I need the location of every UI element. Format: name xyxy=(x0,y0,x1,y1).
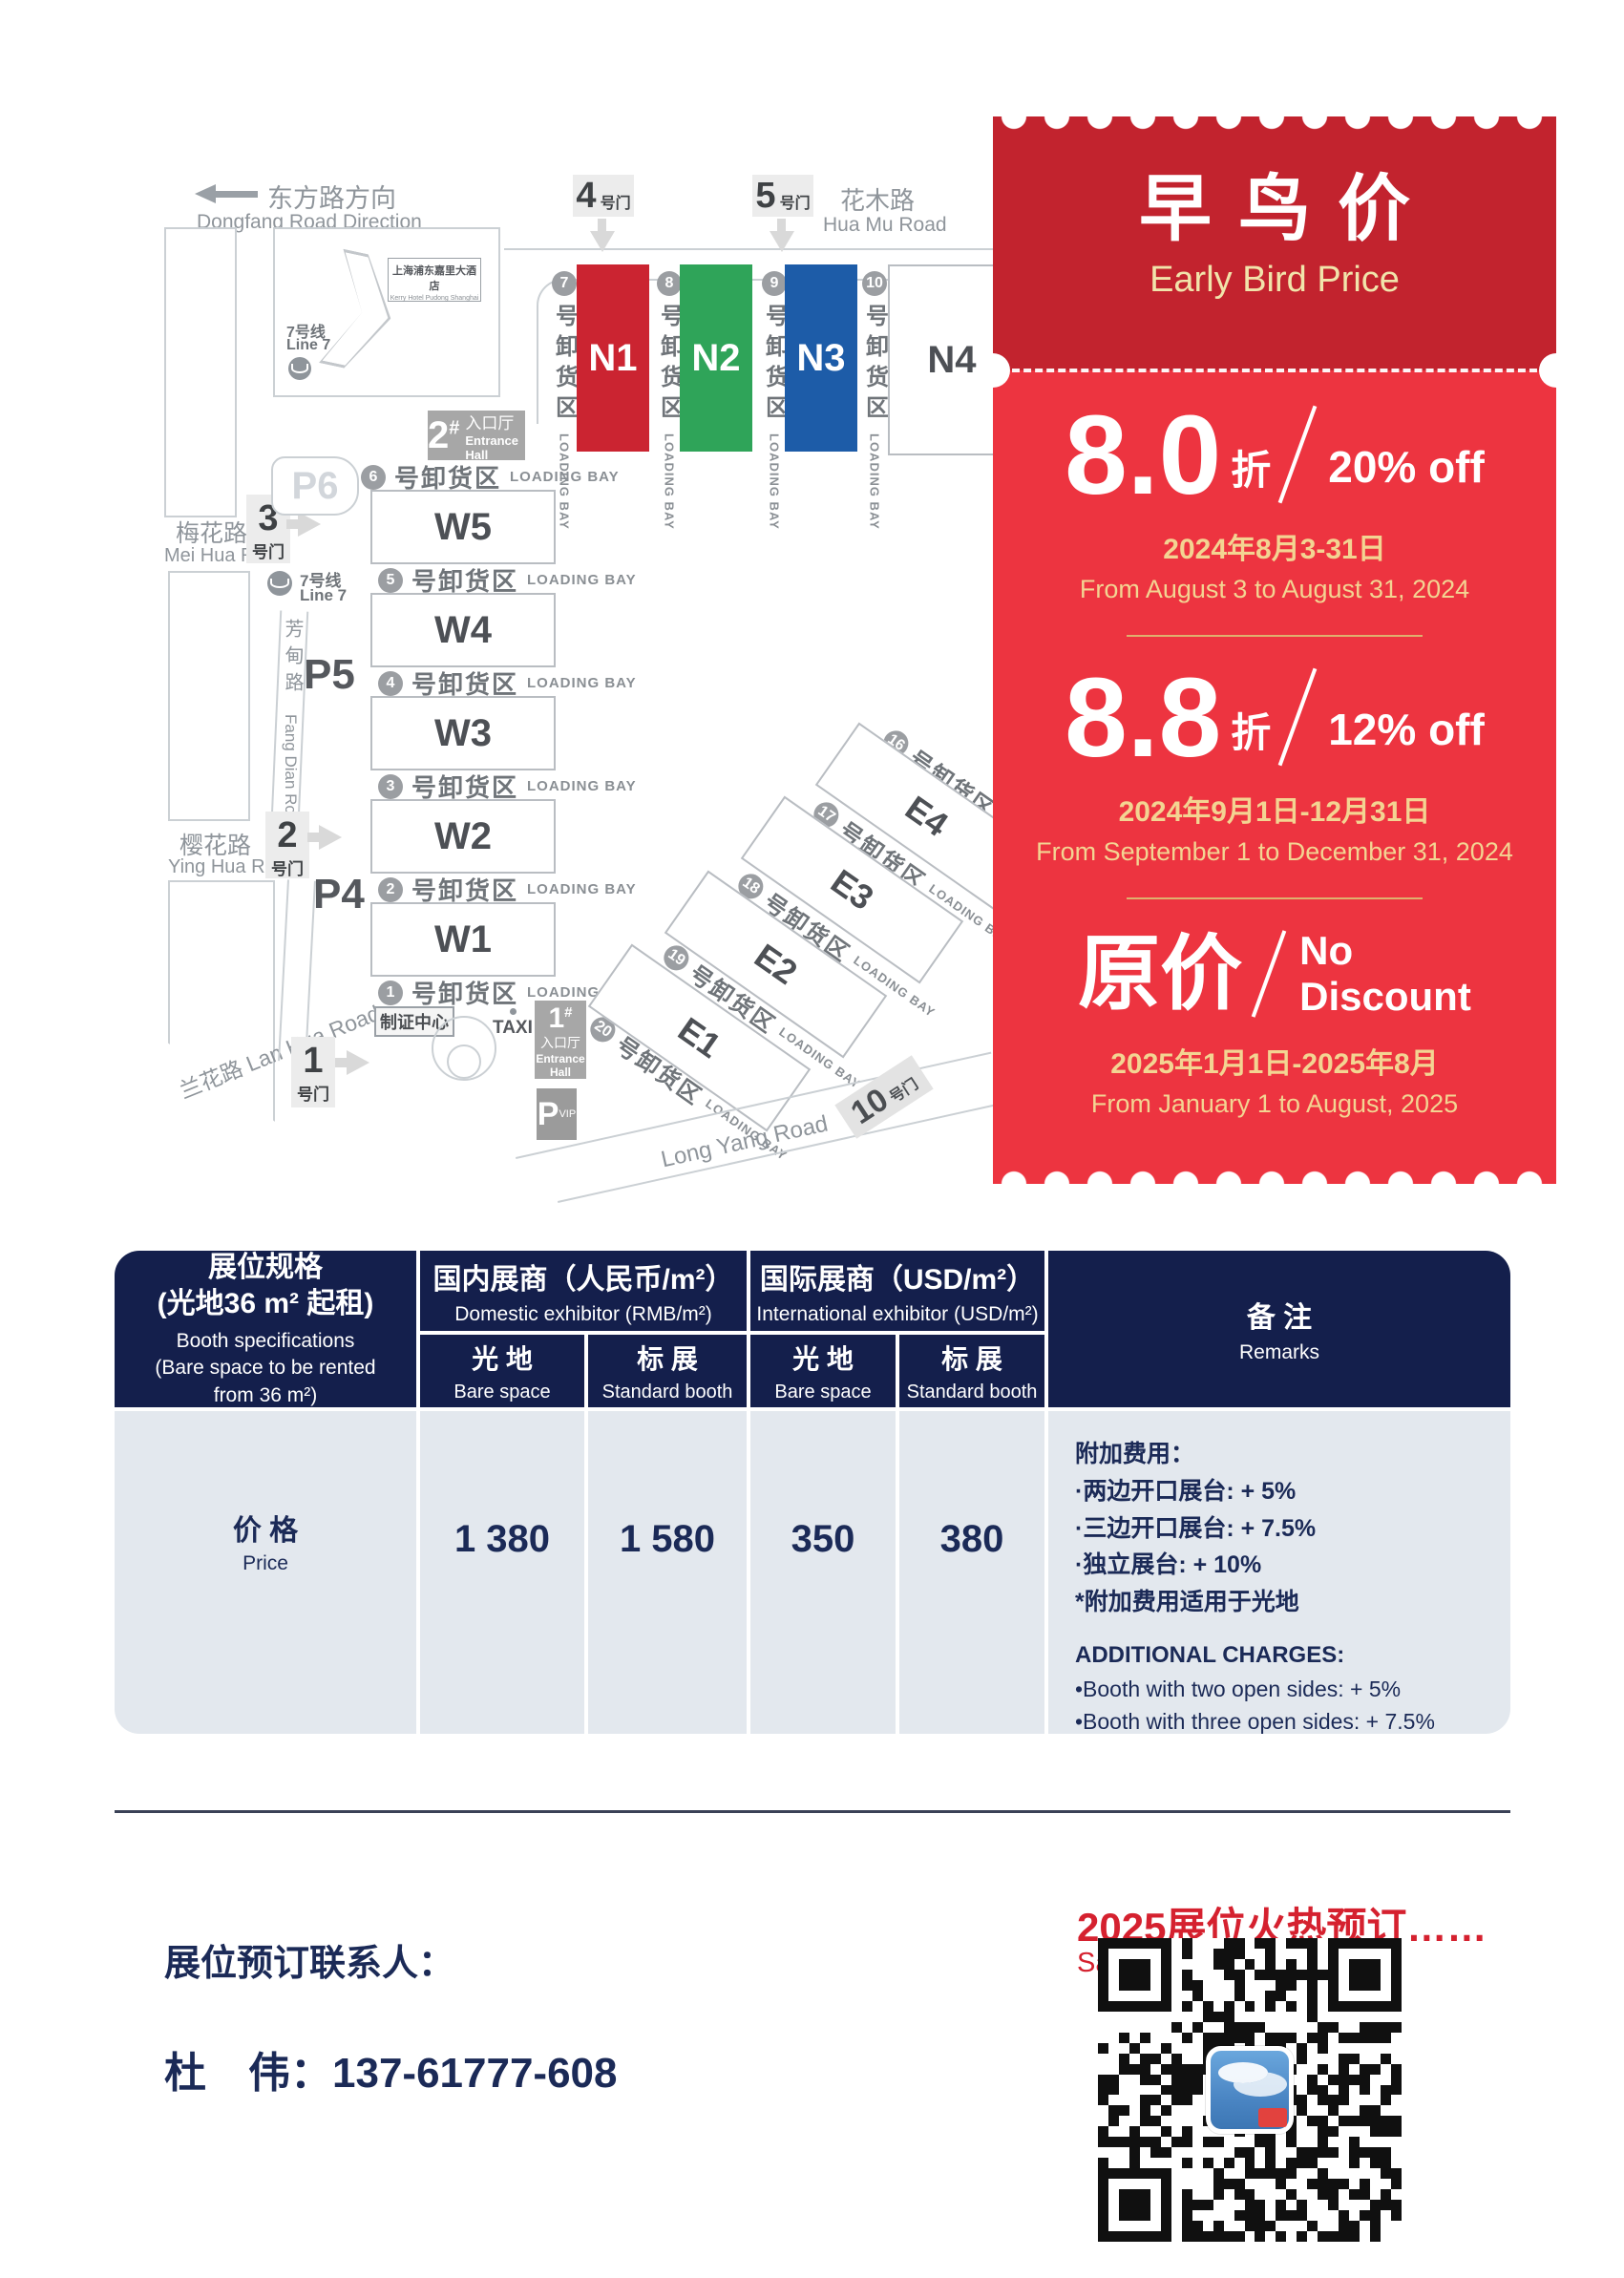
price-domestic-bare: 1 380 xyxy=(420,1411,584,1734)
loading-bay-number: 9 xyxy=(762,271,787,296)
hotel-shape xyxy=(319,249,403,376)
table-subheader-bare-international: 光 地 Bare space xyxy=(750,1335,896,1407)
parking-p4: P4 xyxy=(313,871,365,918)
table-subheader-standard-international: 标 展 Standard booth xyxy=(899,1335,1044,1407)
road-huamu-zh: 花木路 xyxy=(840,181,915,217)
taxi-dot xyxy=(510,1008,517,1015)
taxi-label: TAXI xyxy=(493,1018,533,1039)
tier1-value: 8.0 xyxy=(1065,407,1221,506)
wechat-qr-code xyxy=(1098,1938,1402,2242)
tier1-date-en: From August 3 to August 31, 2024 xyxy=(1065,575,1485,604)
ticket-body: 8.0 折 20% off 2024年8月3-31日 From August 3… xyxy=(993,370,1556,1159)
arrow-right-icon xyxy=(286,519,298,529)
table-subheader-standard-domestic: 标 展 Standard booth xyxy=(588,1335,747,1407)
tier-divider-rule xyxy=(1127,897,1423,899)
table-header-remarks: 备 注 Remarks xyxy=(1048,1251,1510,1407)
entrance-hall-2: 2# 入口厅 Entrance Hall xyxy=(428,411,525,460)
tier3-offer: No Discount xyxy=(1299,928,1471,1021)
arrow-right-icon xyxy=(307,833,319,842)
hall-w4: W4 xyxy=(370,593,556,667)
metro-logo-icon xyxy=(267,571,292,596)
contact-person-label: 展位预订联系人： xyxy=(164,1933,454,1986)
hall-w3: W3 xyxy=(370,696,556,770)
tier2-offer: 12% off xyxy=(1328,704,1485,755)
ticket-title-zh: 早鸟价 xyxy=(993,170,1556,250)
slash-icon xyxy=(1278,668,1318,767)
table-subheader-bare-domestic: 光 地 Bare space xyxy=(420,1335,584,1407)
hall-w1: W1 xyxy=(370,902,556,977)
hall-w2: W2 xyxy=(370,799,556,874)
ticket-title-en: Early Bird Price xyxy=(993,260,1556,301)
tier2-unit: 折 xyxy=(1231,701,1271,759)
tier2-date-en: From September 1 to December 31, 2024 xyxy=(1036,837,1513,867)
flyer-page: 东方路方向 Dongfang Road Direction 梅花路 Mei Hu… xyxy=(0,0,1624,2278)
tier3-date-zh: 2025年1月1日-2025年8月 xyxy=(1078,1040,1471,1082)
road-meihua-zh: 梅花路 xyxy=(176,515,247,549)
loading-bay-number: 7 xyxy=(552,271,577,296)
cloud-icon xyxy=(1218,2062,1268,2083)
road-longyang-line xyxy=(558,1104,996,1203)
table-header-spec: 展位规格 (光地36 m² 起租) Booth specifications (… xyxy=(115,1251,416,1407)
tier3-value: 原价 xyxy=(1078,933,1242,1015)
loading-bay-number: 3 xyxy=(378,774,403,799)
road-huamu-en: Hua Mu Road xyxy=(823,214,947,237)
qr-center-logo xyxy=(1206,2046,1294,2134)
tier2-value: 8.8 xyxy=(1065,669,1221,769)
loading-bay-number: 2 xyxy=(378,877,403,902)
hall-n3: N3 xyxy=(785,264,857,452)
hall-n2: N2 xyxy=(680,264,752,452)
loading-bay-number: 10 xyxy=(862,271,887,296)
table-header-domestic: 国内展商（人民币/m²） Domestic exhibitor (RMB/m²) xyxy=(420,1251,747,1331)
parking-p5: P5 xyxy=(304,651,355,699)
roundabout-inner xyxy=(447,1044,481,1079)
hotel-name-en: Kerry Hotel Pudong Shanghai xyxy=(389,295,480,302)
arrow-right-icon xyxy=(335,1058,347,1067)
ticket-notch-right xyxy=(1539,353,1573,388)
arrow-down-icon xyxy=(770,231,794,252)
gate-5: 5 号门 xyxy=(752,175,813,217)
tier3-date-en: From January 1 to August, 2025 xyxy=(1078,1089,1471,1119)
parking-vip: PVIP xyxy=(537,1088,577,1140)
slash-icon xyxy=(1278,406,1318,504)
parking-p6: P6 xyxy=(271,456,359,516)
loading-bay-number: 4 xyxy=(378,671,403,696)
road-fangdian-zh: 芳甸路 xyxy=(279,619,306,699)
price-domestic-standard: 1 580 xyxy=(588,1411,747,1734)
tier-divider-rule xyxy=(1127,635,1423,637)
price-table: 展位规格 (光地36 m² 起租) Booth specifications (… xyxy=(115,1251,1510,1734)
discount-tier-1: 8.0 折 20% off 2024年8月3-31日 From August 3… xyxy=(1065,403,1485,604)
contact-person-phone: 杜 伟：137-61777-608 xyxy=(164,2038,617,2099)
loading-bay-number: 6 xyxy=(361,465,386,490)
discount-tier-2: 8.8 折 12% off 2024年9月1日-12月31日 From Sept… xyxy=(1036,665,1513,867)
road-dongfang-zh: 东方路方向 xyxy=(267,178,396,215)
tier1-offer: 20% off xyxy=(1328,441,1485,493)
metro-logo-icon xyxy=(288,357,311,380)
hall-n1: N1 xyxy=(577,264,649,452)
road-top xyxy=(504,248,993,250)
loading-bay-number: 5 xyxy=(378,568,403,593)
arrow-right-icon xyxy=(347,1050,369,1075)
ticket-header: 早鸟价 Early Bird Price xyxy=(993,141,1556,370)
arrow-down-icon xyxy=(777,219,786,231)
entrance-hall-1: 1# 入口厅 Entrance Hall xyxy=(535,1001,586,1079)
arrow-left-icon xyxy=(216,191,258,198)
ticket-scallop-bottom xyxy=(993,1159,1556,1184)
loading-bay-number: 8 xyxy=(657,271,682,296)
gate-1: 1 号门 xyxy=(291,1037,335,1107)
metro-line7-en: Line 7 xyxy=(286,337,330,354)
map-parcel xyxy=(168,571,250,821)
map-parcel xyxy=(164,227,237,517)
tier1-date-zh: 2024年8月3-31日 xyxy=(1065,525,1485,567)
ticket-notch-left xyxy=(976,353,1010,388)
price-international-standard: 380 xyxy=(899,1411,1044,1734)
discount-tier-3: 原价 No Discount 2025年1月1日-2025年8月 From Ja… xyxy=(1078,928,1471,1119)
metro-line7-en: Line 7 xyxy=(300,586,347,605)
ticket-scallop-top xyxy=(993,116,1556,141)
gate-4: 4 号门 xyxy=(573,175,634,217)
ticket-dashed-divider xyxy=(1001,369,1549,372)
hotel-block: 上海浦东嘉里大酒店 Kerry Hotel Pudong Shanghai 7号… xyxy=(273,227,500,397)
table-header-international: 国际展商（USD/m²） International exhibitor (US… xyxy=(750,1251,1044,1331)
arrow-down-icon xyxy=(590,231,615,252)
arrow-left-icon xyxy=(195,184,216,203)
remarks-cell: 附加费用： ·两边开口展台: + 5% ·三边开口展台: + 7.5% ·独立展… xyxy=(1048,1411,1510,1734)
early-bird-ticket: 早鸟价 Early Bird Price 8.0 折 20% off 2024年… xyxy=(993,116,1556,1184)
hall-w5: W5 xyxy=(370,490,556,564)
section-divider xyxy=(115,1810,1510,1813)
loading-bay-number: 1 xyxy=(378,981,403,1005)
flag-icon xyxy=(1258,2108,1287,2127)
tier2-date-zh: 2024年9月1日-12月31日 xyxy=(1036,788,1513,830)
slash-icon xyxy=(1252,931,1287,1019)
loading-bay-10: 10 号卸货区 LOADING BAY xyxy=(860,271,889,530)
map-parcel xyxy=(168,880,275,1161)
hotel-name-zh: 上海浦东嘉里大酒店 xyxy=(389,263,480,293)
arrow-down-icon xyxy=(598,219,606,231)
tier1-unit: 折 xyxy=(1231,438,1271,496)
arrow-right-icon xyxy=(319,825,342,850)
price-international-bare: 350 xyxy=(750,1411,896,1734)
gate-2: 2 号门 xyxy=(265,812,309,878)
price-row-label: 价 格 Price xyxy=(115,1411,416,1734)
